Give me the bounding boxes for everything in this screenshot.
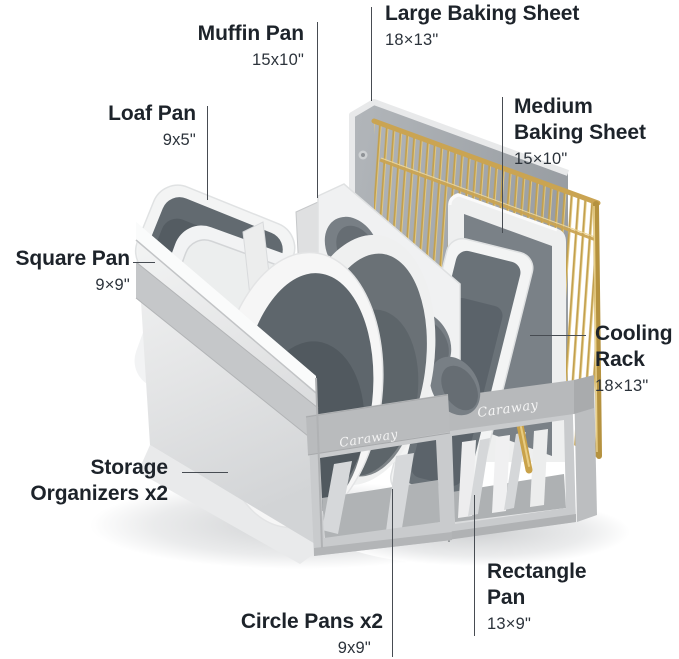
label-title: Storage Organizers x2 [14, 455, 168, 507]
label-size: 13×9" [487, 614, 605, 635]
callout-cooling-rack: Cooling Rack 18×13" [595, 321, 679, 397]
callout-muffin-pan: Muffin Pan 15x10" [150, 21, 304, 71]
callout-square-pan: Square Pan 9×9" [2, 246, 130, 296]
label-size: 9×9" [2, 275, 130, 296]
connector-large-baking-sheet [371, 7, 372, 101]
connector-circle-pans [392, 489, 393, 657]
label-size: 18×13" [385, 30, 579, 51]
label-title: Square Pan [2, 246, 130, 272]
callout-circle-pans: Circle Pans x2 9x9" [178, 609, 383, 659]
label-size: 15×10" [514, 149, 656, 170]
callout-rectangle-pan: Rectangle Pan 13×9" [487, 559, 605, 635]
annotated-product-image: { "brand": "Caraway", "callouts": { "lar… [0, 0, 679, 658]
label-title: Loaf Pan [80, 101, 196, 127]
label-size: 9x5" [80, 130, 196, 151]
connector-storage-organizers [182, 472, 228, 473]
callout-large-baking-sheet: Large Baking Sheet 18×13" [385, 1, 579, 51]
label-size: 15x10" [150, 50, 304, 71]
label-title: Large Baking Sheet [385, 1, 579, 27]
connector-muffin-pan [317, 22, 318, 198]
label-title: Medium Baking Sheet [514, 94, 656, 146]
callout-storage-organizers: Storage Organizers x2 [14, 455, 168, 507]
connector-cooling-rack [530, 335, 586, 336]
connector-loaf-pan [207, 106, 208, 200]
label-title: Rectangle Pan [487, 559, 605, 611]
callout-medium-baking-sheet: Medium Baking Sheet 15×10" [514, 94, 656, 170]
connector-square-pan [133, 262, 155, 263]
connector-rectangle-pan [474, 495, 475, 636]
label-title: Muffin Pan [150, 21, 304, 47]
callout-loaf-pan: Loaf Pan 9x5" [80, 101, 196, 151]
label-title: Cooling Rack [595, 321, 679, 373]
label-size: 18×13" [595, 376, 679, 397]
label-title: Circle Pans x2 [178, 609, 383, 635]
label-size: 9x9" [178, 638, 371, 659]
connector-medium-baking-sheet [502, 97, 503, 233]
